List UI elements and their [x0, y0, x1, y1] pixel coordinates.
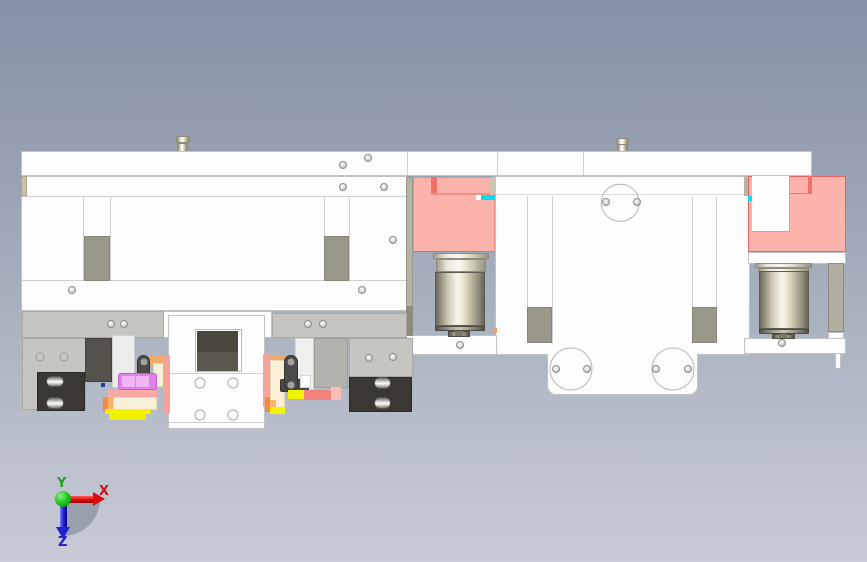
screw-fastener[interactable] — [380, 183, 388, 191]
cad-viewport: Y X Z — [0, 0, 867, 562]
guide-slider-left[interactable] — [84, 236, 110, 281]
guide-column-edge — [552, 196, 553, 343]
screw-fastener[interactable] — [652, 365, 660, 373]
cylinder-left-shaft-hub — [455, 331, 463, 336]
lower-rail-right[interactable] — [744, 338, 846, 354]
screw-fastener[interactable] — [107, 320, 115, 328]
selected-edge-highlight-right[interactable] — [748, 196, 752, 201]
selected-edge-highlight-left[interactable] — [481, 195, 495, 201]
clamp-red-stripe-left — [431, 177, 437, 195]
center-slider-right[interactable] — [692, 307, 717, 343]
hinge-pin-screw — [287, 381, 294, 388]
screw-fastener[interactable] — [552, 365, 560, 373]
gripper-base-plate-left[interactable] — [22, 311, 164, 338]
vertical-rail-strip-dark — [406, 306, 413, 336]
screw-fastener[interactable] — [389, 236, 397, 244]
pusher-dark-insert-top[interactable] — [197, 331, 238, 352]
gripper-right-white-pad — [300, 375, 311, 389]
lower-rail-left[interactable] — [406, 335, 497, 355]
right-bracket-plate[interactable] — [349, 338, 414, 377]
clamp-red-line-right — [790, 193, 808, 195]
right-small-tab[interactable] — [835, 353, 841, 369]
hinge-pin-screw — [287, 358, 294, 365]
cylinder-right-body[interactable] — [759, 271, 809, 329]
screw-fastener[interactable] — [778, 339, 786, 347]
screw-fastener[interactable] — [456, 341, 464, 349]
screw-fastener[interactable] — [633, 198, 641, 206]
guide-column-edge — [349, 197, 350, 280]
gripper-right-salmon-block — [331, 387, 341, 401]
rail-slot — [374, 377, 391, 389]
gripper-base-plate-right[interactable] — [272, 313, 407, 338]
screw-fastener[interactable] — [364, 154, 372, 162]
triad-x-label: X — [99, 485, 109, 498]
guide-column-edge — [110, 197, 111, 280]
screw-fastener[interactable] — [339, 161, 347, 169]
orange-speck — [494, 328, 497, 333]
guide-slider-right[interactable] — [324, 236, 349, 281]
screw-fastener[interactable] — [358, 286, 366, 294]
right-spacer-strip[interactable] — [748, 252, 846, 264]
plate-seam — [583, 152, 584, 175]
gripper-left-yellow-pad[interactable] — [109, 413, 146, 420]
cylinder-left-body[interactable] — [435, 272, 485, 327]
pusher-bolt-hole — [228, 409, 239, 420]
pusher-bolt-hole — [194, 377, 205, 388]
screw-fastener[interactable] — [120, 320, 128, 328]
right-spacer-column[interactable] — [314, 338, 348, 388]
clamp-tan-post — [490, 177, 497, 194]
clamp-white-notch — [752, 176, 790, 232]
clamp-red-stripe-right — [808, 176, 812, 194]
gripper-left-salmon-post[interactable] — [163, 355, 170, 413]
screw-fastener[interactable] — [365, 354, 373, 362]
left-spacer-block-dark[interactable] — [85, 338, 112, 382]
gripper-right-red-block[interactable] — [304, 390, 331, 400]
screw-fastener[interactable] — [304, 320, 312, 328]
pusher-bolt-hole — [228, 377, 239, 388]
edge-spacer-block[interactable] — [21, 176, 27, 196]
sensor-dot — [101, 383, 105, 387]
screw-fastener[interactable] — [389, 353, 397, 361]
screw-fastener[interactable] — [684, 365, 692, 373]
pusher-seam — [169, 373, 264, 374]
right-guide-foot — [828, 332, 844, 340]
rail-slot — [46, 376, 64, 388]
bracket-hole — [60, 352, 69, 361]
plate-seam — [407, 152, 408, 175]
triad-z-label: Z — [58, 536, 67, 549]
cylinder-left-flange[interactable] — [436, 259, 486, 273]
center-slider-left[interactable] — [527, 307, 552, 343]
screw-fastener[interactable] — [583, 365, 591, 373]
screw-fastener[interactable] — [319, 320, 327, 328]
rail-slot — [46, 397, 64, 409]
cylinder-right-shaft-hub — [779, 334, 787, 339]
screw-fastener[interactable] — [602, 198, 610, 206]
triad-y-label: Y — [57, 477, 66, 490]
screw-fastener[interactable] — [339, 183, 347, 191]
triad-origin-sphere[interactable] — [55, 491, 71, 507]
magenta-inset — [136, 376, 149, 387]
pink-clamp-left[interactable] — [413, 177, 496, 252]
plate-seam — [497, 152, 498, 175]
right-guide-column[interactable] — [828, 263, 844, 332]
pusher-bolt-hole — [194, 409, 205, 420]
pusher-seam — [169, 422, 264, 423]
bracket-hole — [36, 352, 45, 361]
gripper-right-yellow-pad[interactable] — [288, 390, 304, 399]
rail-slot — [374, 397, 391, 409]
gripper-right-yellow-strip[interactable] — [270, 407, 285, 414]
pusher-dark-insert-bottom[interactable] — [197, 352, 238, 371]
screw-fastener[interactable] — [68, 286, 76, 294]
hinge-pin-screw — [140, 358, 147, 365]
top-base-plate[interactable] — [21, 151, 812, 176]
magenta-inset — [122, 376, 135, 387]
